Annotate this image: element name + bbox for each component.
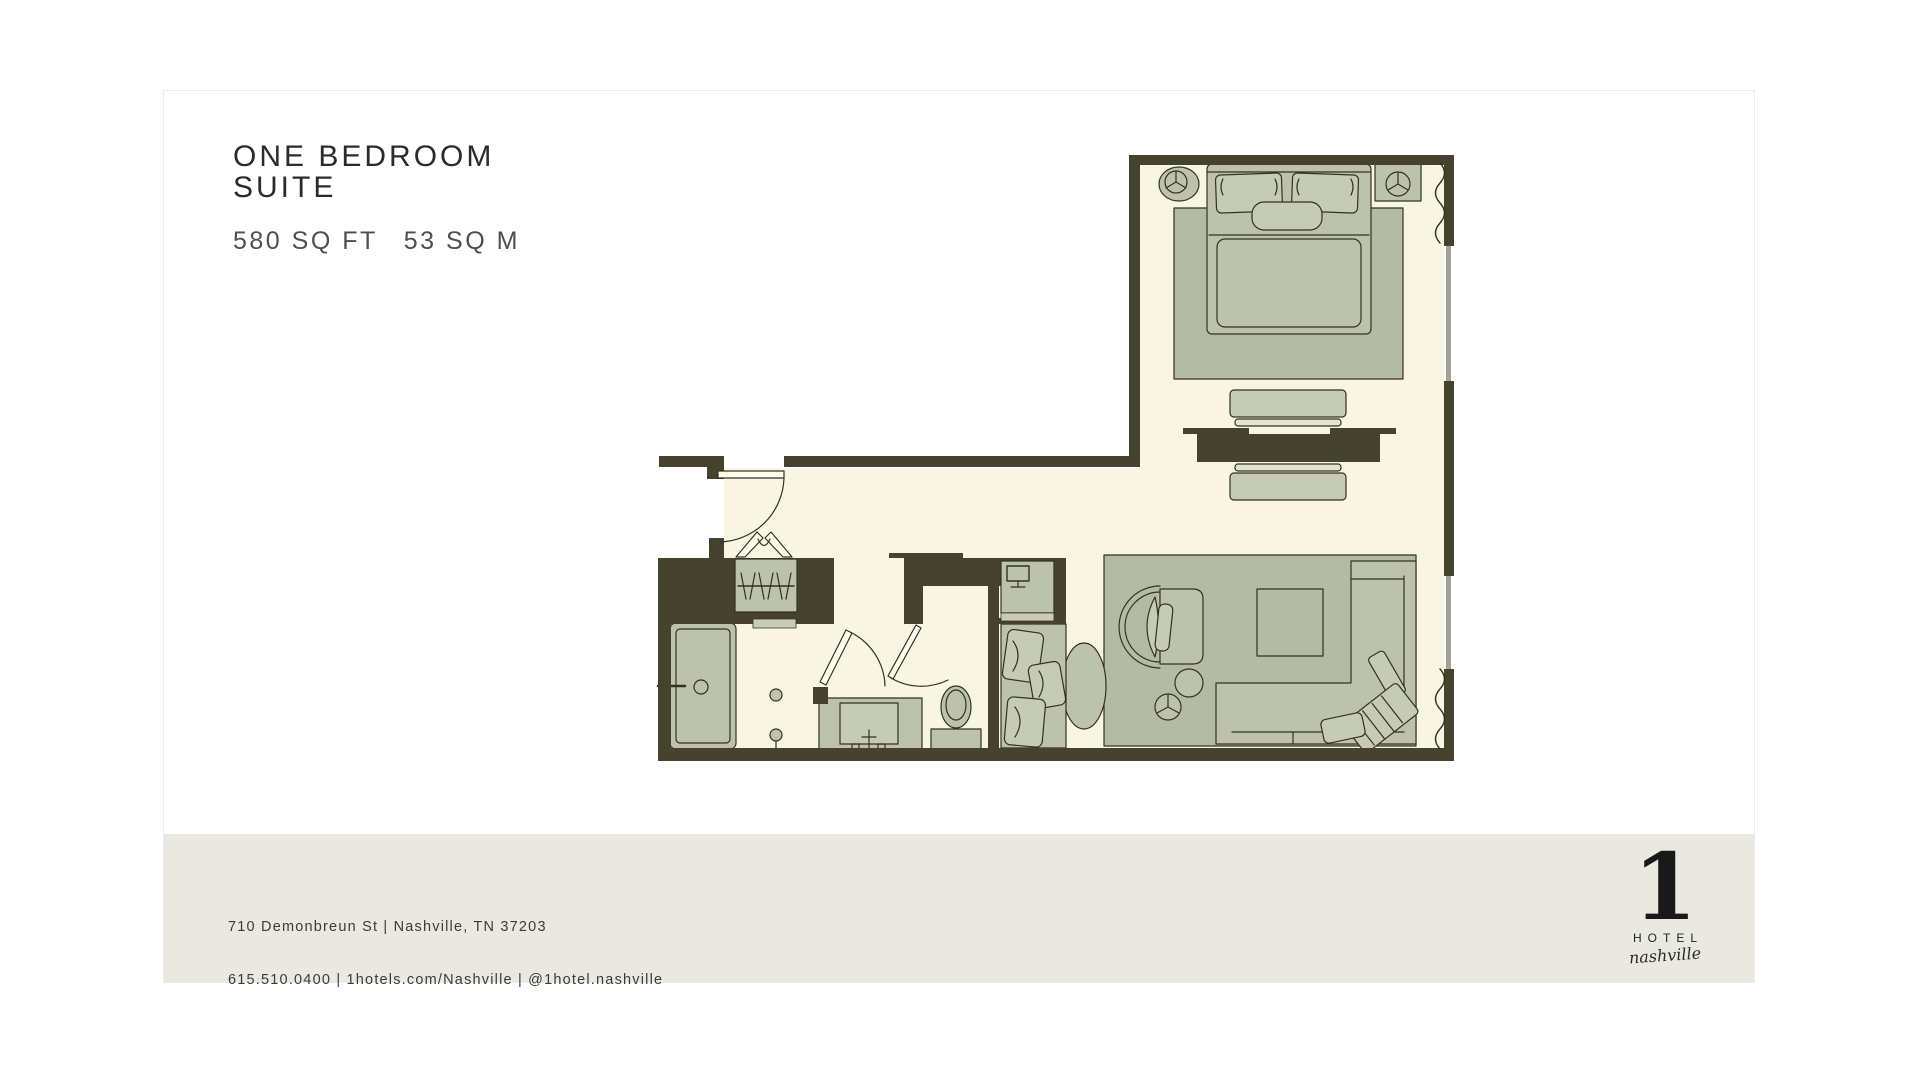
footer-band: 710 Demonbreun St | Nashville, TN 37203 … — [164, 834, 1754, 982]
floorplan — [651, 146, 1461, 766]
hotel-logo: 1 HOTEL nashville — [1601, 848, 1729, 965]
foot-bench — [1230, 390, 1346, 426]
side-stool — [1159, 167, 1199, 201]
window-upper — [1446, 246, 1451, 381]
page-title-line2: SUITE — [233, 172, 494, 203]
logo-numeral: 1 — [1601, 848, 1729, 926]
area-sqm: 53 SQ M — [404, 227, 520, 255]
window-lower — [1446, 576, 1451, 669]
footer-text: 710 Demonbreun St | Nashville, TN 37203 … — [228, 884, 663, 1024]
nightstand — [1375, 164, 1421, 201]
living-bench — [1230, 464, 1346, 500]
page-title-line1: ONE BEDROOM — [233, 141, 494, 172]
logo-location-script: nashville — [1600, 942, 1729, 970]
coffee-table — [1257, 589, 1323, 656]
tv-niche — [1001, 561, 1054, 621]
bed — [1207, 164, 1371, 334]
daybed — [1001, 624, 1067, 748]
vanity — [819, 698, 922, 749]
fact-sheet-card: ONE BEDROOM SUITE 580 SQ FT53 SQ M — [163, 90, 1755, 983]
footer-contact: 615.510.0400 | 1hotels.com/Nashville | @… — [228, 972, 663, 990]
footer-address: 710 Demonbreun St | Nashville, TN 37203 — [228, 919, 663, 937]
tripod-table — [1155, 694, 1181, 720]
round-side-table — [1175, 669, 1203, 697]
area-sqft: 580 SQ FT — [233, 227, 378, 255]
page-title: ONE BEDROOM SUITE — [233, 141, 494, 203]
area-info: 580 SQ FT53 SQ M — [233, 227, 546, 256]
oval-table — [1062, 643, 1106, 729]
